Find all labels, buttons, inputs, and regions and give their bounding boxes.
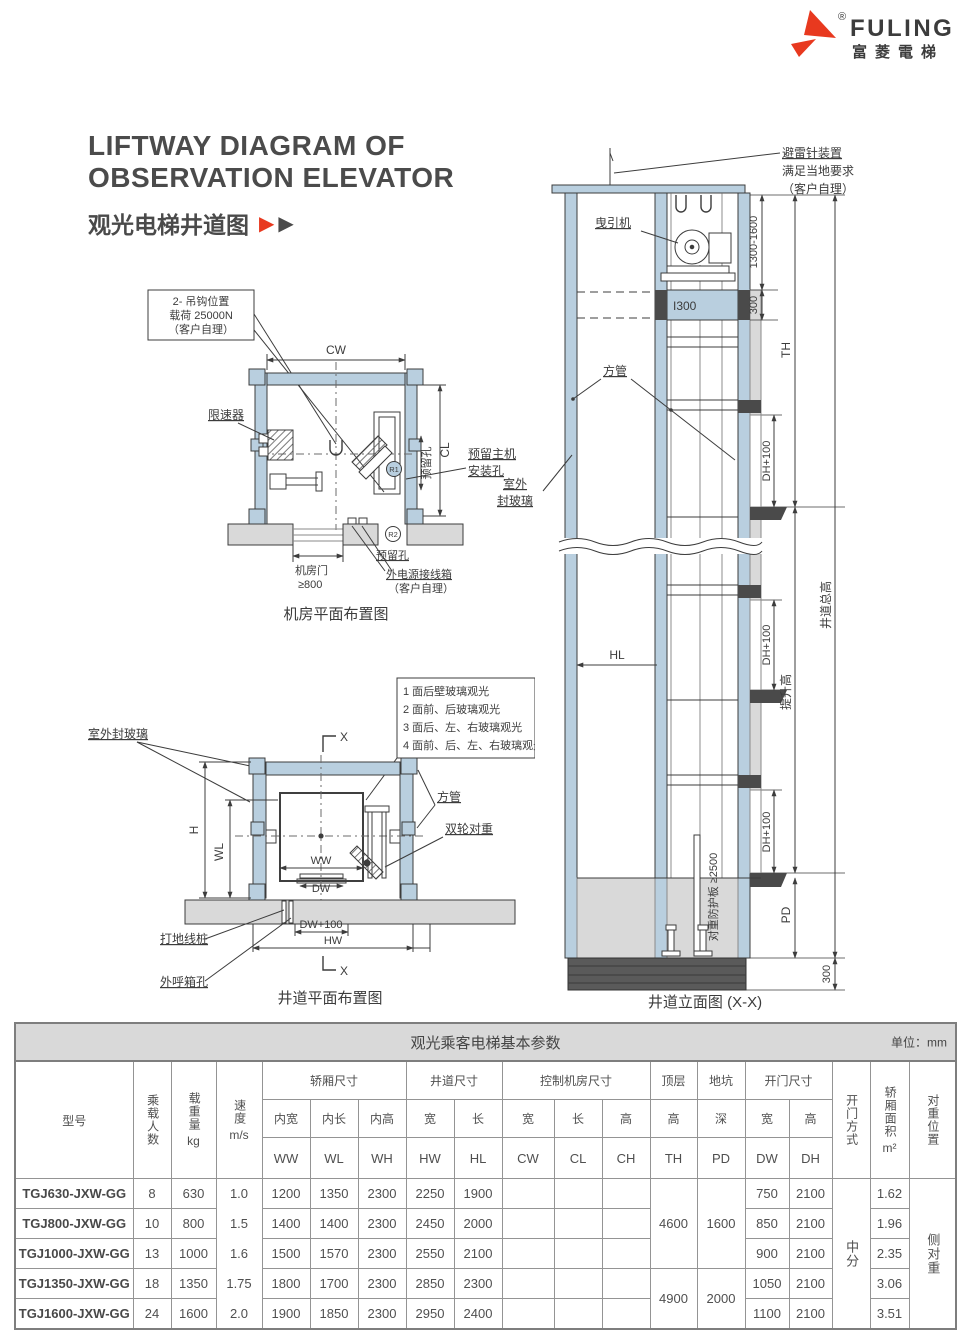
cell-ww: 1500 bbox=[262, 1239, 310, 1269]
liftway-plan-diagram: 室外封玻璃 X 1 面后壁玻璃观光 2 面前、后玻璃观光 3 面后、左、右玻璃观… bbox=[85, 660, 535, 1010]
cw-label: CW bbox=[326, 343, 347, 357]
col-door-type-label: 开门方式 bbox=[844, 1094, 857, 1146]
cell-hl: 1900 bbox=[454, 1179, 502, 1209]
cell-th-merged: 4600 bbox=[650, 1179, 697, 1269]
cell-persons: 18 bbox=[133, 1269, 171, 1299]
roof-slab bbox=[552, 185, 745, 193]
cell-ch bbox=[602, 1269, 650, 1299]
table-row: TGJ1000-JXW-GG 13 1000 1.6 1500 1570 230… bbox=[15, 1239, 956, 1269]
dw100-label: DW+100 bbox=[299, 919, 342, 931]
col-cwt-label: 对重位置 bbox=[926, 1094, 939, 1146]
col-inner-height: 内高 bbox=[358, 1100, 406, 1138]
door-label: 机房门 bbox=[295, 563, 328, 577]
col-pit-depth: 深 bbox=[697, 1100, 745, 1138]
col-car-area: 轿厢面积m² bbox=[870, 1061, 909, 1179]
liftway-plan-caption: 井道平面布置图 bbox=[277, 990, 382, 1007]
liftway-elevation-diagram: 避雷针装置 满足当地要求 （客户自理） 曳引机 bbox=[495, 135, 965, 1015]
cell-load: 630 bbox=[171, 1179, 216, 1209]
cell-door-type-merged: 中分 bbox=[832, 1179, 870, 1330]
cwt-value: 侧对重 bbox=[925, 1233, 939, 1275]
code-ch: CH bbox=[602, 1138, 650, 1179]
col-speed-unit: m/s bbox=[229, 1128, 248, 1142]
title-line1: LIFTWAY DIAGRAM OF bbox=[88, 130, 405, 161]
cell-persons: 13 bbox=[133, 1239, 171, 1269]
table-title: 观光乘客电梯基本参数 bbox=[411, 1035, 561, 1052]
cell-wl: 1850 bbox=[310, 1299, 358, 1330]
code-wh: WH bbox=[358, 1138, 406, 1179]
ww-label: WW bbox=[311, 855, 332, 867]
cell-wh: 2300 bbox=[358, 1299, 406, 1330]
col-shaft-length: 长 bbox=[454, 1100, 502, 1138]
cell-area: 3.06 bbox=[870, 1269, 909, 1299]
door-type-value: 中分 bbox=[844, 1240, 858, 1268]
table-title-row: 观光乘客电梯基本参数 单位：mm bbox=[15, 1023, 956, 1061]
col-top-height: 高 bbox=[650, 1100, 697, 1138]
double-wheel-cwt-label: 双轮对重 bbox=[445, 822, 493, 836]
table-row: TGJ1600-JXW-GG 24 1600 2.0 1900 1850 230… bbox=[15, 1299, 956, 1330]
cell-cw bbox=[502, 1179, 554, 1209]
brand-chinese: 富菱電梯 bbox=[852, 43, 944, 61]
parameters-table: 观光乘客电梯基本参数 单位：mm 型号 乘载人数 载重量kg 速度m/s 轿厢尺… bbox=[14, 1022, 957, 1330]
cell-wh: 2300 bbox=[358, 1239, 406, 1269]
shaft-floor-slab bbox=[185, 900, 515, 924]
cell-dh: 2100 bbox=[789, 1269, 832, 1299]
brand-name: FULING bbox=[850, 15, 954, 42]
cell-cl bbox=[554, 1209, 602, 1239]
lightning-label-line3: （客户自理） bbox=[782, 181, 854, 196]
door-dimension bbox=[293, 545, 343, 562]
cell-hw: 2250 bbox=[406, 1179, 454, 1209]
cell-dw: 850 bbox=[745, 1209, 789, 1239]
cell-dw: 1050 bbox=[745, 1269, 789, 1299]
traction-machine bbox=[661, 230, 735, 281]
col-area-unit: m² bbox=[883, 1141, 897, 1155]
table-unit: 单位：mm bbox=[891, 1034, 947, 1051]
ceiling-hooks bbox=[676, 195, 711, 212]
traction-machine-label: 曳引机 bbox=[595, 216, 631, 230]
hl-label: HL bbox=[609, 648, 625, 662]
cell-cwt-merged: 侧对重 bbox=[909, 1179, 956, 1330]
wl-dimension bbox=[225, 800, 278, 898]
dw-label: DW bbox=[312, 883, 331, 895]
cell-ch bbox=[602, 1239, 650, 1269]
cell-hw: 2550 bbox=[406, 1239, 454, 1269]
governor-label: 限速器 bbox=[208, 408, 244, 422]
hw-label: HW bbox=[324, 935, 343, 947]
cell-model: TGJ1350-JXW-GG bbox=[15, 1269, 133, 1299]
power-box-line2: （客户自理） bbox=[388, 581, 454, 595]
r1-label: R1 bbox=[389, 465, 399, 474]
col-mr-height: 高 bbox=[602, 1100, 650, 1138]
hook-note-line3: （客户自理） bbox=[168, 322, 234, 336]
elevation-caption: 井道立面图 (X-X) bbox=[648, 994, 762, 1011]
code-dh: DH bbox=[789, 1138, 832, 1179]
cell-dw: 900 bbox=[745, 1239, 789, 1269]
cell-cl bbox=[554, 1179, 602, 1209]
group-pit: 地坑 bbox=[697, 1061, 745, 1100]
col-load-unit: kg bbox=[187, 1134, 200, 1148]
cell-persons: 10 bbox=[133, 1209, 171, 1239]
dim-1300-1600: 1300-1600 bbox=[748, 216, 760, 269]
code-cw: CW bbox=[502, 1138, 554, 1179]
col-mr-length: 长 bbox=[554, 1100, 602, 1138]
travel-height-label: 提升高 bbox=[778, 674, 793, 710]
col-persons: 乘载人数 bbox=[133, 1061, 171, 1179]
call-box-label: 外呼箱孔 bbox=[160, 974, 208, 989]
cell-cl bbox=[554, 1299, 602, 1330]
machine-room-plan-diagram: 2- 吊钩位置 载荷 25000N （客户自理） CW CL bbox=[140, 278, 530, 628]
group-shaft-size: 井道尺寸 bbox=[406, 1061, 502, 1100]
dh2-label: DH+100 bbox=[761, 625, 773, 666]
cell-hl: 2100 bbox=[454, 1239, 502, 1269]
parameters-section: 观光乘客电梯基本参数 单位：mm 型号 乘载人数 载重量kg 速度m/s 轿厢尺… bbox=[14, 1022, 954, 1330]
cell-load: 1000 bbox=[171, 1239, 216, 1269]
group-machine-room-size: 控制机房尺寸 bbox=[502, 1061, 650, 1100]
cell-load: 1350 bbox=[171, 1269, 216, 1299]
break-lines bbox=[559, 538, 762, 555]
th-label: TH bbox=[779, 342, 793, 358]
cell-speed: 2.0 bbox=[216, 1299, 262, 1330]
cell-dh: 2100 bbox=[789, 1179, 832, 1209]
cell-area: 2.35 bbox=[870, 1239, 909, 1269]
cell-pd-merged: 2000 bbox=[697, 1269, 745, 1330]
dh1-label: DH+100 bbox=[761, 441, 773, 482]
cell-model: TGJ1000-JXW-GG bbox=[15, 1239, 133, 1269]
cl-label: CL bbox=[438, 442, 452, 458]
outdoor-glass-elev-line1: 室外 bbox=[503, 476, 527, 491]
i300-label: I300 bbox=[673, 299, 697, 313]
cell-cl bbox=[554, 1239, 602, 1269]
col-speed-label: 速度 bbox=[232, 1099, 245, 1125]
cell-load: 1600 bbox=[171, 1299, 216, 1330]
col-model: 型号 bbox=[15, 1061, 133, 1179]
code-dw: DW bbox=[745, 1138, 789, 1179]
h-dimension bbox=[199, 762, 251, 898]
cell-hl: 2400 bbox=[454, 1299, 502, 1330]
cell-hw: 2450 bbox=[406, 1209, 454, 1239]
col-load: 载重量kg bbox=[171, 1061, 216, 1179]
cell-cw bbox=[502, 1209, 554, 1239]
cell-ch bbox=[602, 1299, 650, 1330]
cell-dh: 2100 bbox=[789, 1209, 832, 1239]
cell-area: 3.51 bbox=[870, 1299, 909, 1330]
cell-speed: 1.75 bbox=[216, 1269, 262, 1299]
car-center-point bbox=[318, 833, 323, 838]
table-row: TGJ800-JXW-GG 10 800 1.5 1400 1400 2300 … bbox=[15, 1209, 956, 1239]
cell-model: TGJ630-JXW-GG bbox=[15, 1179, 133, 1209]
code-ww: WW bbox=[262, 1138, 310, 1179]
outdoor-glass-label: 室外封玻璃 bbox=[88, 726, 148, 741]
door-dim: ≥800 bbox=[298, 579, 322, 591]
subtitle-text: 观光电梯井道图 bbox=[88, 206, 249, 240]
cell-load: 800 bbox=[171, 1209, 216, 1239]
col-door-height: 高 bbox=[789, 1100, 832, 1138]
cell-wl: 1570 bbox=[310, 1239, 358, 1269]
total-height-label: 井道总高 bbox=[818, 581, 833, 629]
cell-pd-merged: 1600 bbox=[697, 1179, 745, 1269]
reserved-hole-bottom-label: 预留孔 bbox=[376, 549, 409, 562]
cell-dh: 2100 bbox=[789, 1299, 832, 1330]
cell-speed: 1.5 bbox=[216, 1209, 262, 1239]
bottom-slab bbox=[568, 958, 746, 990]
cwt-guard-label: 对重防护板 ≥2500 bbox=[706, 853, 720, 942]
cell-hw: 2950 bbox=[406, 1299, 454, 1330]
cell-hl: 2300 bbox=[454, 1269, 502, 1299]
page-title: LIFTWAY DIAGRAM OF OBSERVATION ELEVATOR bbox=[88, 130, 548, 193]
title-block: LIFTWAY DIAGRAM OF OBSERVATION ELEVATOR … bbox=[88, 130, 548, 240]
col-speed: 速度m/s bbox=[216, 1061, 262, 1179]
cell-persons: 8 bbox=[133, 1179, 171, 1209]
r2-label: R2 bbox=[388, 530, 398, 539]
cell-wl: 1400 bbox=[310, 1209, 358, 1239]
hook-note-line2: 载荷 25000N bbox=[169, 309, 233, 322]
col-persons-label: 乘载人数 bbox=[145, 1094, 158, 1146]
cell-speed: 1.0 bbox=[216, 1179, 262, 1209]
fuling-logo: ® FULING 富菱電梯 bbox=[788, 8, 960, 64]
pd-label: PD bbox=[779, 906, 793, 923]
red-arrow-icon: ▶ bbox=[259, 211, 274, 236]
cell-cl bbox=[554, 1269, 602, 1299]
cell-ch bbox=[602, 1179, 650, 1209]
code-pd: PD bbox=[697, 1138, 745, 1179]
fuling-logo-mark-icon: ® bbox=[791, 10, 846, 57]
registered-mark: ® bbox=[838, 11, 846, 23]
col-cwt-position: 对重位置 bbox=[909, 1061, 956, 1179]
cell-area: 1.96 bbox=[870, 1209, 909, 1239]
dark-arrow-icon: ▶ bbox=[278, 211, 293, 236]
cell-wh: 2300 bbox=[358, 1269, 406, 1299]
cell-model: TGJ800-JXW-GG bbox=[15, 1209, 133, 1239]
col-mr-width: 宽 bbox=[502, 1100, 554, 1138]
cell-dh: 2100 bbox=[789, 1239, 832, 1269]
x-top-label: X bbox=[340, 730, 348, 744]
dim-300-top: 300 bbox=[748, 296, 760, 314]
group-door-size: 开门尺寸 bbox=[745, 1061, 832, 1100]
cell-hl: 2000 bbox=[454, 1209, 502, 1239]
x-bottom-label: X bbox=[340, 964, 348, 978]
cell-cw bbox=[502, 1299, 554, 1330]
x-mark-top bbox=[323, 736, 336, 752]
ground-wire-label: 打地线桩 bbox=[160, 931, 208, 946]
hook-note-line1: 2- 吊钩位置 bbox=[173, 294, 230, 308]
cell-wl: 1350 bbox=[310, 1179, 358, 1209]
x-mark-bottom bbox=[323, 956, 336, 970]
note-line2: 2 面前、后玻璃观光 bbox=[403, 702, 500, 716]
col-inner-width: 内宽 bbox=[262, 1100, 310, 1138]
machine-room-caption: 机房平面布置图 bbox=[283, 606, 388, 623]
table-row: TGJ630-JXW-GG 8 630 1.0 1200 1350 2300 2… bbox=[15, 1179, 956, 1209]
code-hw: HW bbox=[406, 1138, 454, 1179]
lightning-label-line2: 满足当地要求 bbox=[782, 164, 854, 178]
cell-persons: 24 bbox=[133, 1299, 171, 1330]
code-wl: WL bbox=[310, 1138, 358, 1179]
cell-ww: 1800 bbox=[262, 1269, 310, 1299]
note-line1: 1 面后壁玻璃观光 bbox=[403, 684, 489, 698]
cell-ww: 1400 bbox=[262, 1209, 310, 1239]
h-label: H bbox=[187, 826, 201, 835]
table-header-groups: 型号 乘载人数 载重量kg 速度m/s 轿厢尺寸 井道尺寸 控制机房尺寸 顶层 … bbox=[15, 1061, 956, 1100]
lightning-label-line1: 避雷针装置 bbox=[782, 145, 842, 160]
cell-hw: 2850 bbox=[406, 1269, 454, 1299]
title-line2: OBSERVATION ELEVATOR bbox=[88, 162, 454, 193]
cell-model: TGJ1600-JXW-GG bbox=[15, 1299, 133, 1330]
col-inner-length: 内长 bbox=[310, 1100, 358, 1138]
group-car-size: 轿厢尺寸 bbox=[262, 1061, 406, 1100]
cell-cw bbox=[502, 1239, 554, 1269]
catalog-page: ® FULING 富菱電梯 LIFTWAY DIAGRAM OF OBSERVA… bbox=[0, 0, 968, 1337]
lightning-rod bbox=[610, 148, 613, 185]
cell-ww: 1200 bbox=[262, 1179, 310, 1209]
cell-area: 1.62 bbox=[870, 1179, 909, 1209]
col-door-width: 宽 bbox=[745, 1100, 789, 1138]
square-tube-label-elev: 方管 bbox=[603, 363, 627, 378]
code-th: TH bbox=[650, 1138, 697, 1179]
dh3-label: DH+100 bbox=[761, 812, 773, 853]
group-top-floor: 顶层 bbox=[650, 1061, 697, 1100]
left-assembly bbox=[270, 472, 322, 491]
cell-th-merged: 4900 bbox=[650, 1269, 697, 1330]
cell-wh: 2300 bbox=[358, 1209, 406, 1239]
col-load-label: 载重量 bbox=[187, 1092, 200, 1131]
cell-dw: 1100 bbox=[745, 1299, 789, 1330]
square-tube-label: 方管 bbox=[437, 789, 461, 804]
col-area-label: 轿厢面积 bbox=[883, 1086, 896, 1138]
cell-wl: 1700 bbox=[310, 1269, 358, 1299]
table-row: TGJ1350-JXW-GG 18 1350 1.75 1800 1700 23… bbox=[15, 1269, 956, 1299]
code-hl: HL bbox=[454, 1138, 502, 1179]
cell-wh: 2300 bbox=[358, 1179, 406, 1209]
cell-ch bbox=[602, 1209, 650, 1239]
cell-cw bbox=[502, 1269, 554, 1299]
dim-300-bottom: 300 bbox=[821, 965, 833, 983]
power-box-line1: 外电源接线箱 bbox=[386, 567, 452, 581]
wl-label: WL bbox=[212, 843, 226, 861]
cell-speed: 1.6 bbox=[216, 1239, 262, 1269]
col-door-type: 开门方式 bbox=[832, 1061, 870, 1179]
pit bbox=[577, 835, 761, 958]
cell-dw: 750 bbox=[745, 1179, 789, 1209]
page-subtitle: 观光电梯井道图 ▶ ▶ bbox=[88, 206, 548, 240]
code-cl: CL bbox=[554, 1138, 602, 1179]
col-shaft-width: 宽 bbox=[406, 1100, 454, 1138]
outdoor-glass-elev-line2: 封玻璃 bbox=[497, 494, 533, 508]
cell-ww: 1900 bbox=[262, 1299, 310, 1330]
